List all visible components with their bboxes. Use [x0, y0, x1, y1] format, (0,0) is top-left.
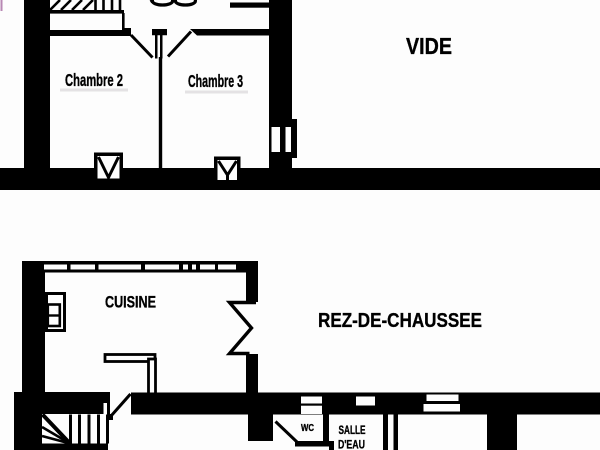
svg-text:WC: WC: [301, 423, 314, 434]
svg-text:D'EAU: D'EAU: [338, 440, 365, 450]
svg-text:Chambre 2: Chambre 2: [65, 70, 123, 90]
svg-text:REZ-DE-CHAUSSEE: REZ-DE-CHAUSSEE: [318, 310, 482, 332]
svg-text:Chambre 3: Chambre 3: [188, 71, 243, 91]
svg-text:CUISINE: CUISINE: [105, 294, 156, 312]
svg-text:SALLE: SALLE: [339, 425, 366, 437]
svg-text:VIDE: VIDE: [406, 33, 452, 59]
